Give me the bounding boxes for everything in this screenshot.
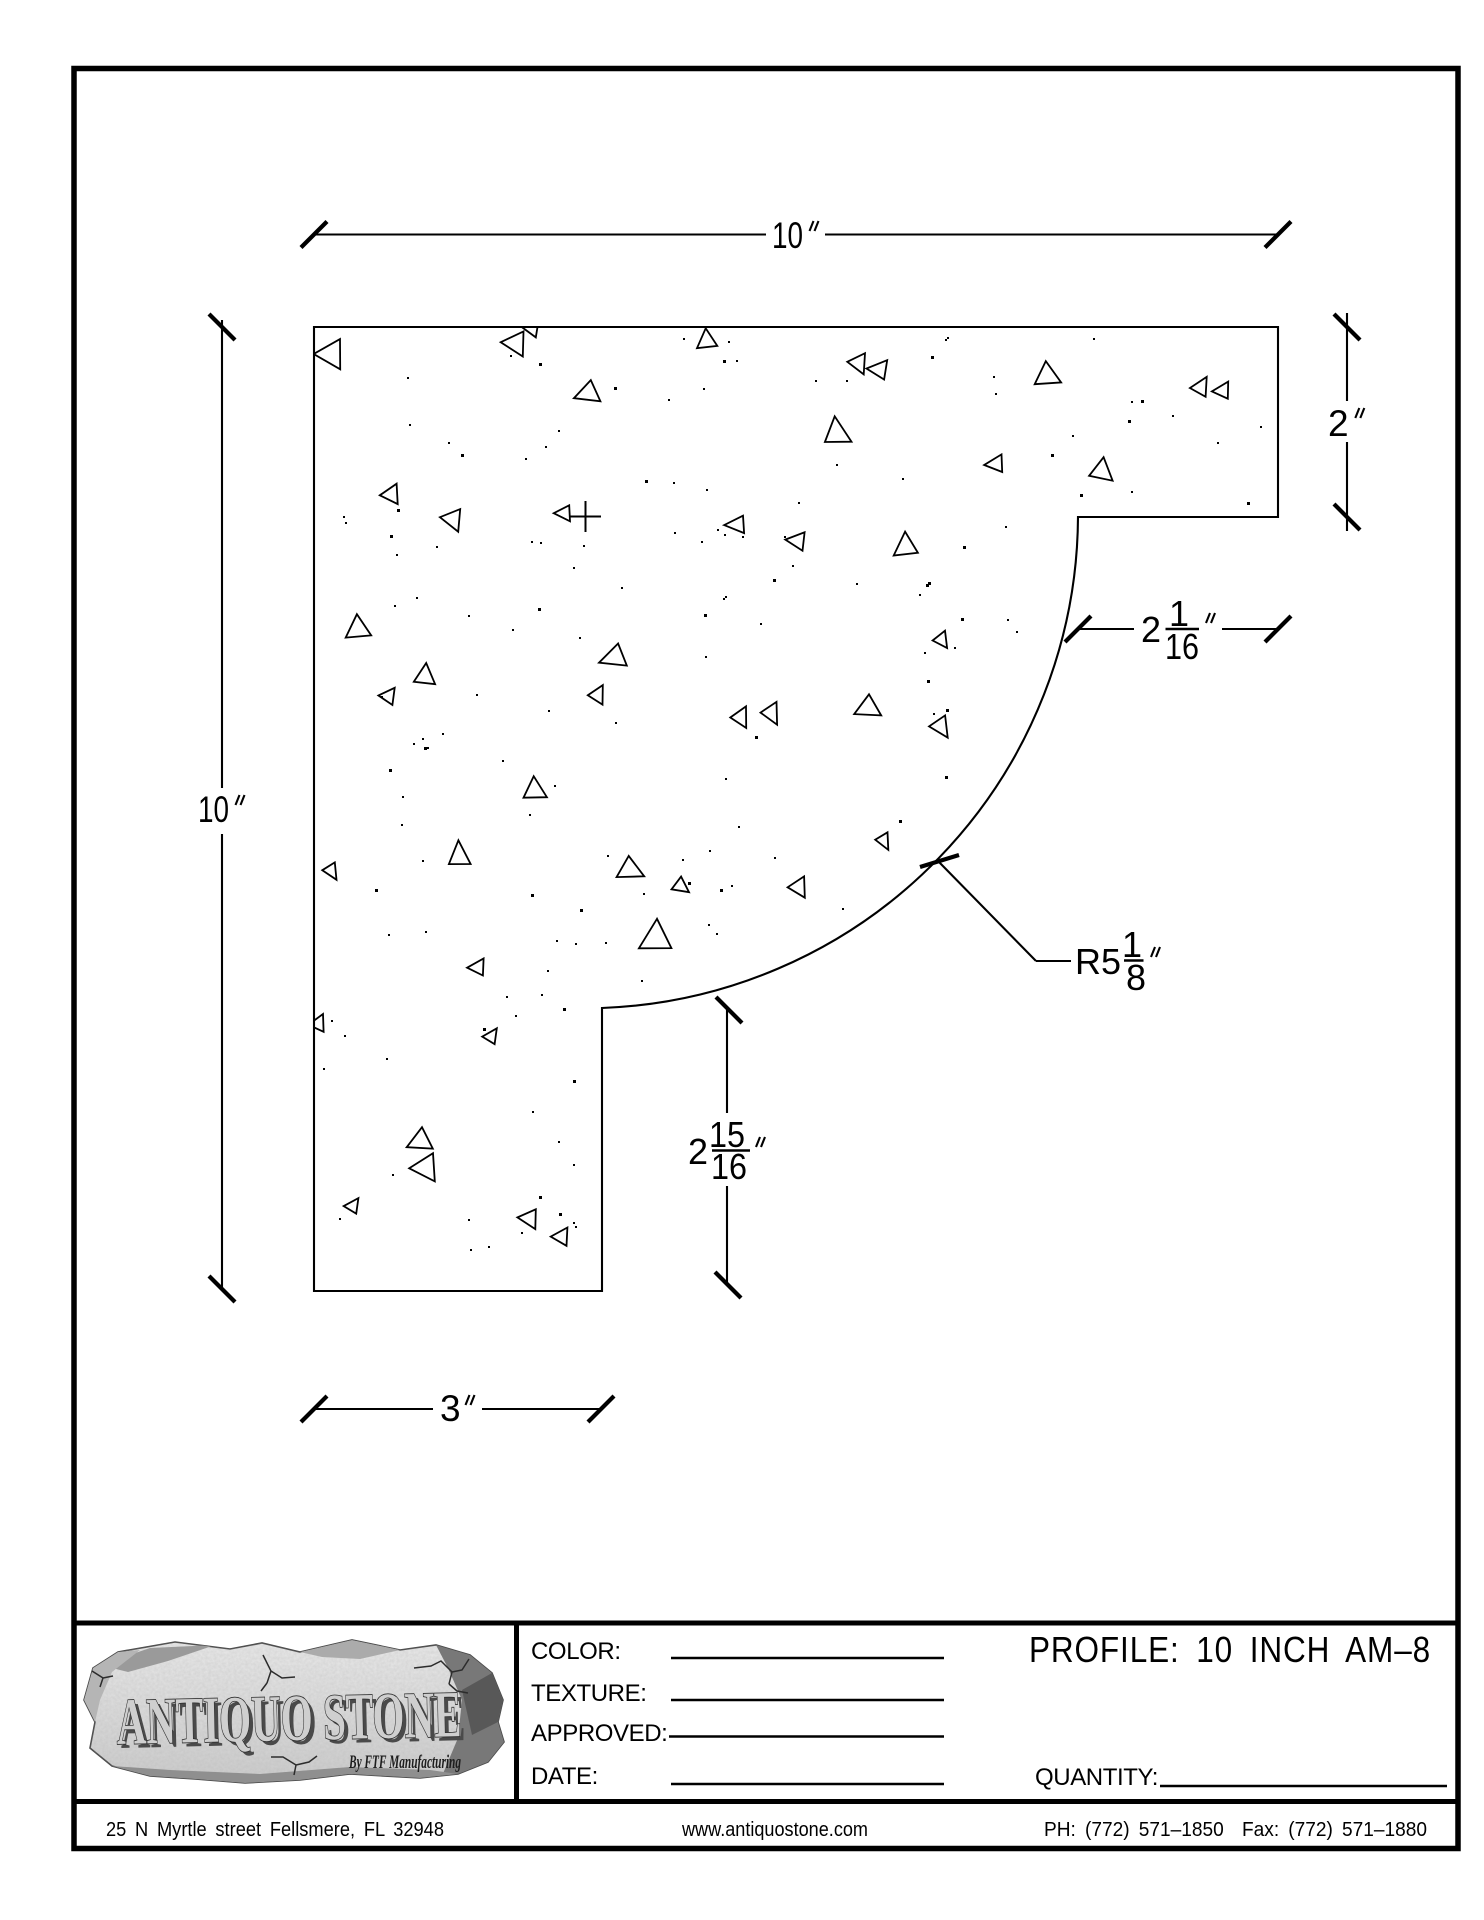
- svg-text:APPROVED:: APPROVED:: [531, 1720, 667, 1747]
- svg-text:10: 10: [198, 789, 229, 830]
- svg-text:16: 16: [711, 1146, 747, 1187]
- svg-text:2: 2: [1141, 609, 1161, 650]
- svg-text:PH: (772) 571–1850 Fax: (772): PH: (772) 571–1850 Fax: (772) 571–1880: [1044, 1819, 1427, 1841]
- svg-text:ANTIQUO STONE: ANTIQUO STONE: [116, 1678, 463, 1759]
- svg-text:R5: R5: [1075, 941, 1121, 982]
- svg-text:TEXTURE:: TEXTURE:: [531, 1680, 646, 1707]
- svg-text:8: 8: [1126, 957, 1146, 998]
- svg-text:16: 16: [1165, 626, 1199, 667]
- svg-text:COLOR:: COLOR:: [531, 1638, 621, 1665]
- svg-text:www.antiquostone.com: www.antiquostone.com: [681, 1819, 868, 1841]
- svg-text:2: 2: [1328, 403, 1349, 444]
- svg-text:10: 10: [772, 215, 803, 256]
- svg-text:25 N Myrtle street Fellsmere,: 25 N Myrtle street Fellsmere, FL 32948: [106, 1819, 444, 1841]
- svg-text:By FTF Manufacturing: By FTF Manufacturing: [348, 1752, 461, 1773]
- svg-text:3: 3: [440, 1388, 461, 1429]
- svg-text:QUANTITY:: QUANTITY:: [1035, 1764, 1158, 1791]
- svg-text:DATE:: DATE:: [531, 1763, 598, 1790]
- svg-text:PROFILE: 10 INCH AM–8: PROFILE: 10 INCH AM–8: [1029, 1629, 1431, 1670]
- svg-text:2: 2: [688, 1131, 708, 1172]
